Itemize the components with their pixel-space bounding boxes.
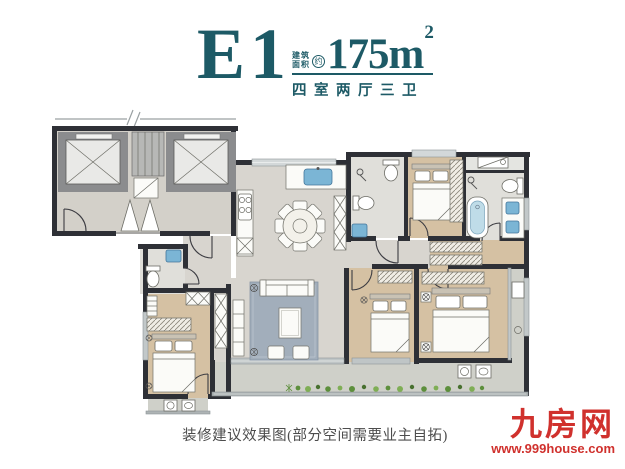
laundry-sink-icon [476,365,491,378]
toilet-icon [383,160,399,181]
watermark: 九房网 www.999house.com [491,407,615,456]
laundry-sink-icon [182,400,195,411]
floor-plan-image [0,0,625,469]
washer-icon [164,400,177,411]
sink-icon [506,221,519,233]
shelf-icon [147,296,157,316]
wall-break-line [55,110,236,127]
sink-icon [506,202,519,214]
elevator-right-icon [166,132,236,192]
toilet-icon [146,266,160,287]
wardrobe [450,160,463,222]
cooktop-icon [239,194,252,220]
sink-icon [166,250,181,262]
armchair-icon [293,346,309,359]
kitchen-sink-icon [304,169,332,185]
watermark-site-url: www.999house.com [491,441,615,456]
caption: 装修建议效果图(部分空间需要业主自拓) [90,424,540,445]
sofa-icon [260,280,314,296]
wardrobe [378,271,412,283]
floorplan-page: E1 建筑 面积 约 175m2 四室两厅三卫 [0,0,625,469]
tv-console-icon [233,300,244,356]
armchair-icon [268,346,284,359]
ac-unit-icon [478,157,508,168]
bathtub-icon [467,197,488,238]
toilet-icon [502,178,523,194]
coffee-table-icon [279,308,301,338]
toilet-icon [353,196,374,210]
elevator-left-icon [58,132,128,192]
wardrobe [147,318,191,331]
dining-table-icon [275,201,325,251]
foyer-closet [215,294,227,348]
wardrobe [422,272,484,284]
watermark-site-name: 九房网 [491,407,615,441]
pantry-cabinet [334,196,346,250]
wardrobe [186,292,210,305]
washer-icon [458,365,471,378]
sink-icon [352,224,367,237]
